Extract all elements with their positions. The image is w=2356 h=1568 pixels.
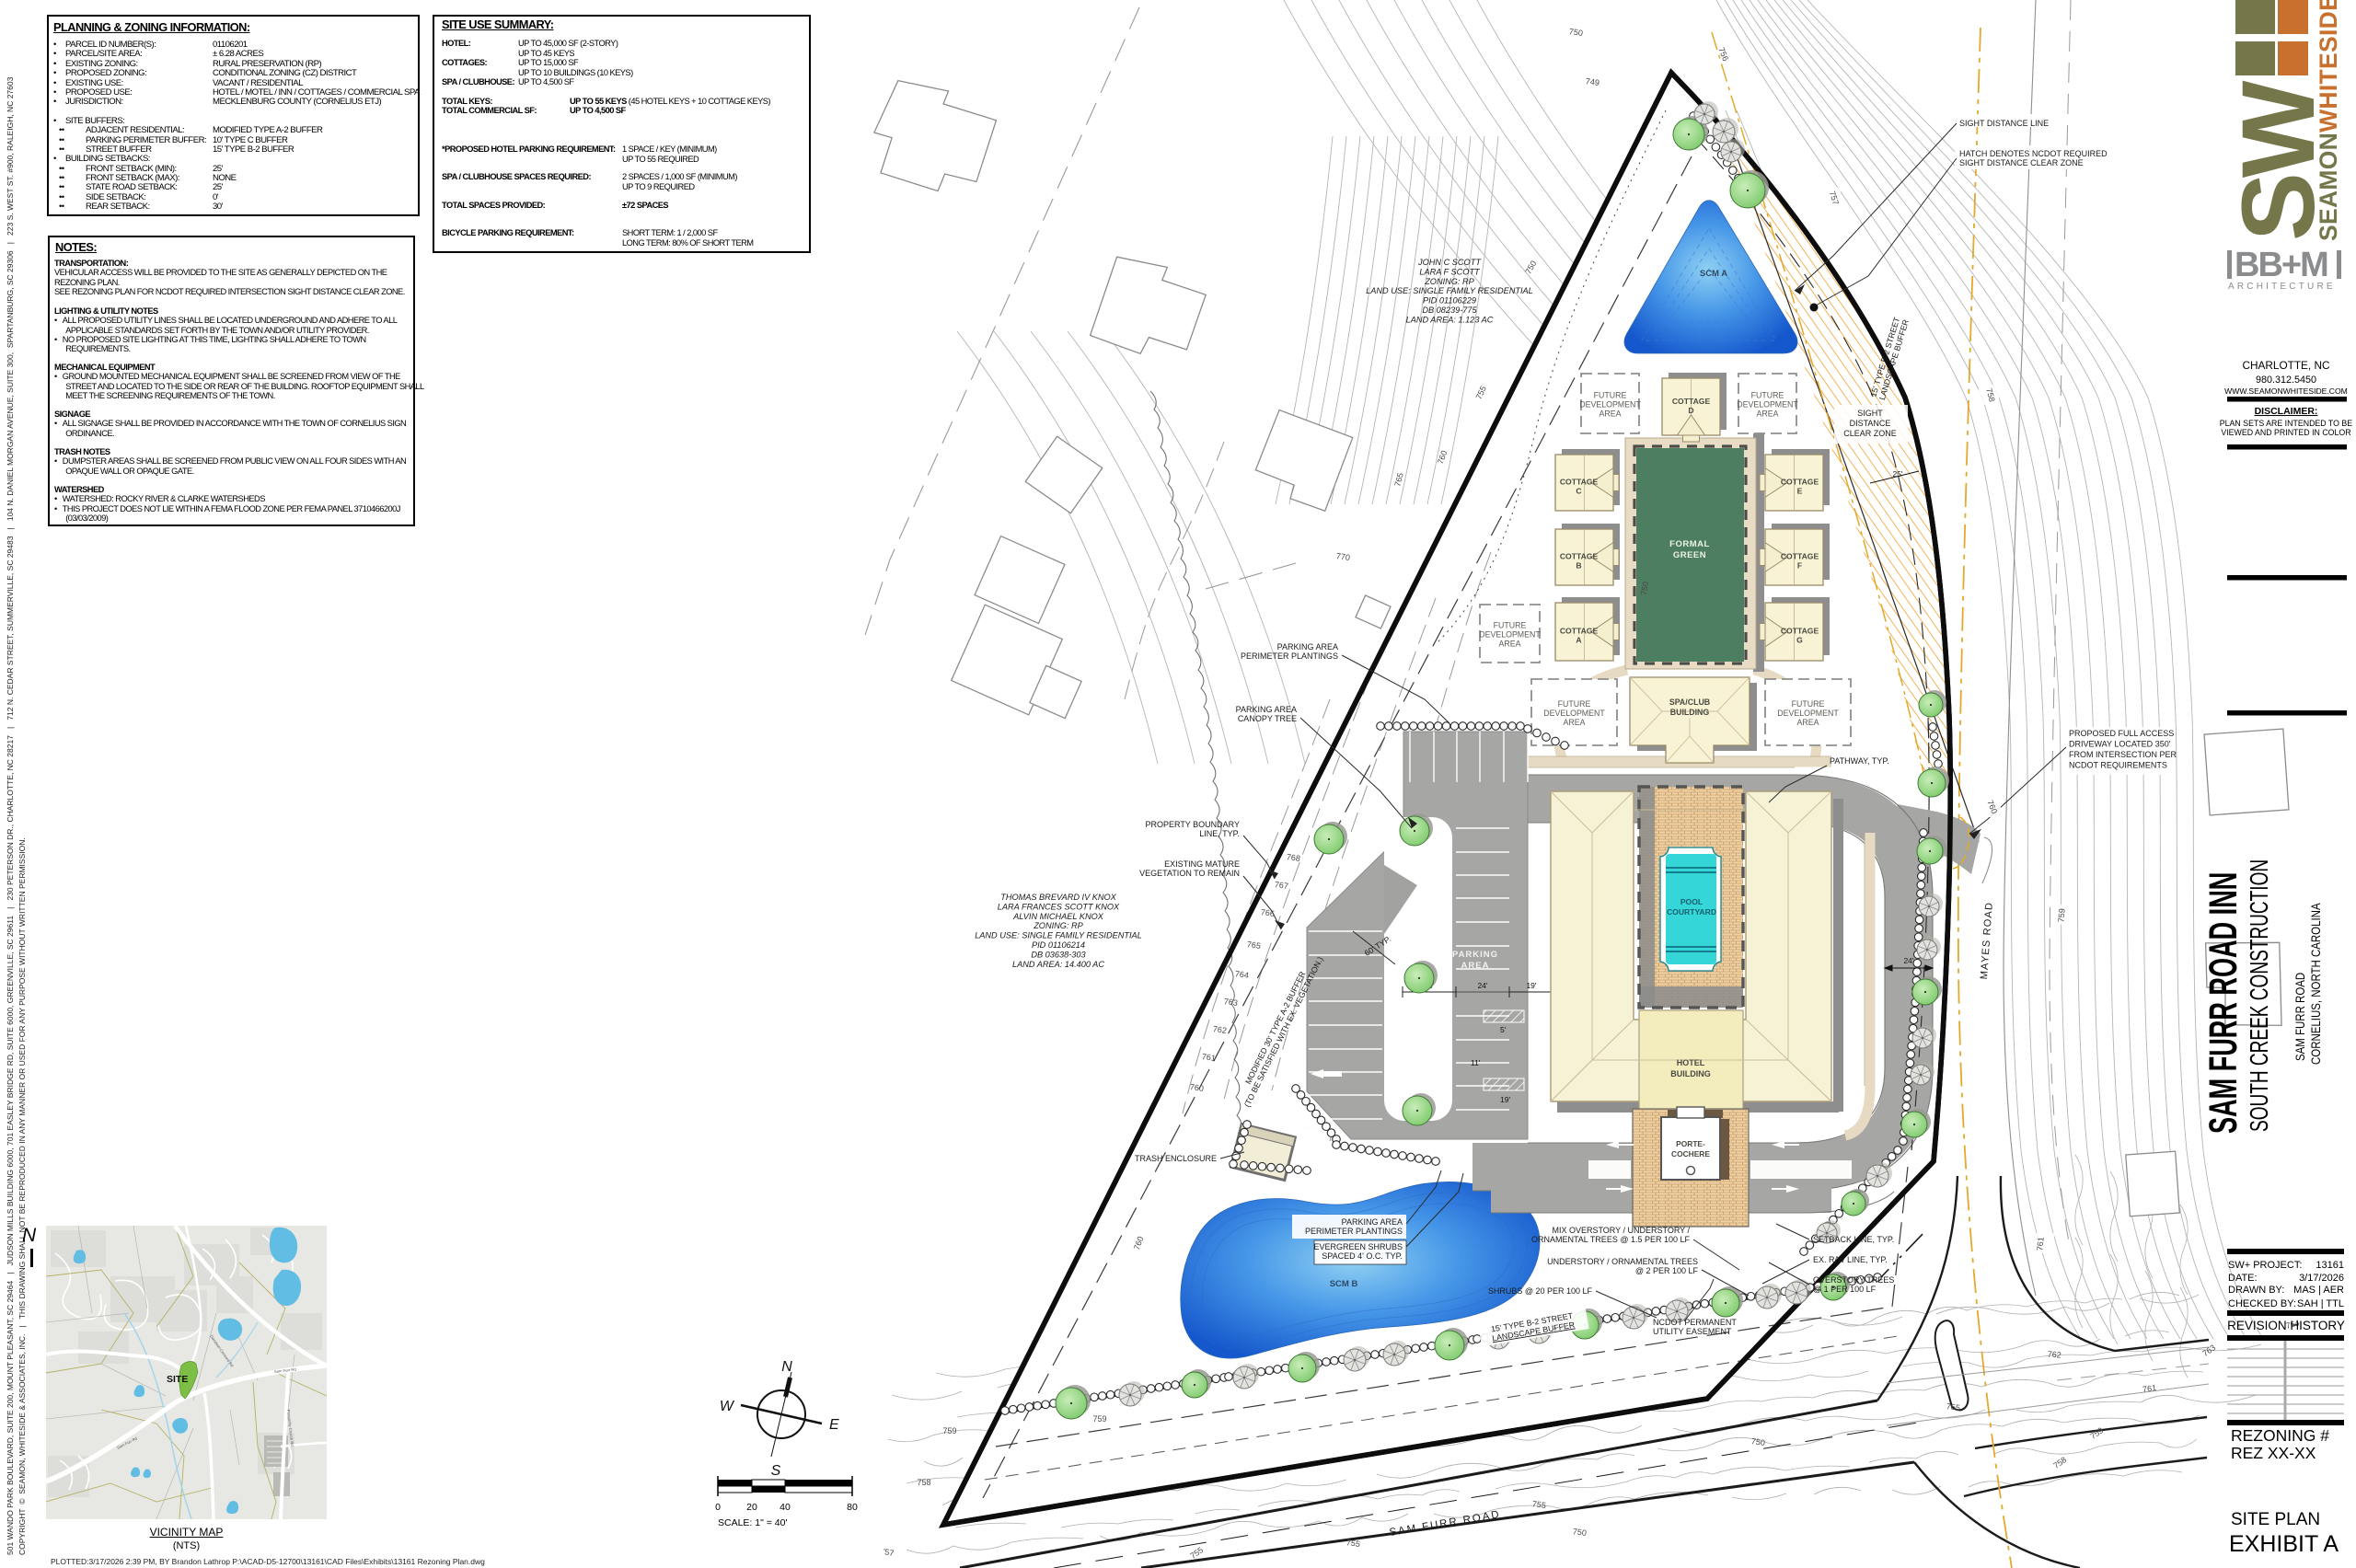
svg-text:FUTURE: FUTURE (1792, 699, 1825, 709)
svg-text:CLEAR ZONE: CLEAR ZONE (1843, 429, 1897, 438)
svg-text:768: 768 (1286, 852, 1300, 863)
svg-text:E: E (1797, 487, 1803, 496)
svg-text:VIEWED AND PRINTED IN COLOR: VIEWED AND PRINTED IN COLOR (2221, 428, 2350, 437)
svg-text:SW+ PROJECT:: SW+ PROJECT: (2228, 1260, 2302, 1271)
svg-text:SCM B: SCM B (1330, 1279, 1358, 1289)
svg-text:COURTYARD: COURTYARD (1667, 907, 1716, 917)
svg-text:COTTAGE: COTTAGE (1560, 627, 1599, 636)
svg-text:SCM A: SCM A (1700, 269, 1727, 279)
svg-text:19': 19' (1526, 981, 1536, 990)
svg-text:SAH | TTL: SAH | TTL (2297, 1298, 2344, 1309)
svg-text:PLAN SETS ARE INTENDED TO BE: PLAN SETS ARE INTENDED TO BE (2220, 419, 2353, 428)
svg-text:OVERSTORY TREES: OVERSTORY TREES (1813, 1275, 1894, 1285)
svg-text:LAND USE: SINGLE FAMILY RESIDE: LAND USE: SINGLE FAMILY RESIDENTIAL (1366, 286, 1533, 295)
svg-text:DEVELOPMENT: DEVELOPMENT (1479, 630, 1541, 640)
svg-text:PATHWAY, TYP.: PATHWAY, TYP. (1830, 756, 1889, 766)
svg-text:PID 01106229: PID 01106229 (1423, 296, 1476, 306)
svg-text:UTILITY EASEMENT: UTILITY EASEMENT (1653, 1327, 1732, 1336)
svg-text:40: 40 (780, 1502, 791, 1513)
svg-text:SIGHT DISTANCE CLEAR ZONE: SIGHT DISTANCE CLEAR ZONE (1959, 158, 2084, 167)
svg-text:HOTEL: HOTEL (1677, 1058, 1705, 1067)
svg-text:THOMAS BREVARD IV KNOX: THOMAS BREVARD IV KNOX (1000, 893, 1116, 902)
svg-text:F: F (1797, 561, 1802, 571)
svg-text:SCALE: 1" = 40': SCALE: 1" = 40' (718, 1517, 787, 1528)
svg-text:EX. R/W LINE, TYP.: EX. R/W LINE, TYP. (1813, 1255, 1888, 1264)
svg-text:'57: '57 (883, 1547, 895, 1558)
svg-text:SEAMONWHITESIDE: SEAMONWHITESIDE (2315, 0, 2342, 241)
svg-text:MIX OVERSTORY / UNDERSTORY /: MIX OVERSTORY / UNDERSTORY / (1552, 1226, 1690, 1235)
svg-text:C: C (1576, 487, 1581, 496)
svg-text:COTTAGE: COTTAGE (1560, 478, 1599, 487)
svg-text:DB 08239-775: DB 08239-775 (1422, 306, 1477, 315)
svg-text:24': 24' (1477, 981, 1487, 990)
svg-text:FORMAL: FORMAL (1669, 539, 1710, 549)
svg-text:759: 759 (1092, 1414, 1106, 1424)
svg-text:COTTAGE: COTTAGE (1781, 478, 1819, 487)
svg-text:SIGHT DISTANCE LINE: SIGHT DISTANCE LINE (1959, 119, 2049, 128)
svg-text:REZONING #: REZONING # (2231, 1426, 2329, 1445)
svg-text:750: 750 (1568, 27, 1583, 38)
svg-text:PARKING AREA: PARKING AREA (1342, 1217, 1403, 1227)
svg-text:770: 770 (1335, 551, 1350, 562)
svg-text:FUTURE: FUTURE (1751, 391, 1784, 400)
svg-text:DEVELOPMENT: DEVELOPMENT (1737, 400, 1798, 409)
svg-text:VEGETATION TO REMAIN: VEGETATION TO REMAIN (1139, 869, 1240, 878)
svg-text:MAS | AER: MAS | AER (2293, 1285, 2344, 1296)
svg-text:765: 765 (1392, 472, 1405, 488)
svg-text:EVERGREEN SHRUBS: EVERGREEN SHRUBS (1313, 1242, 1403, 1251)
svg-text:SIGHT: SIGHT (1857, 409, 1883, 418)
svg-text:760: 760 (1189, 1082, 1204, 1093)
svg-text:CORNELIUS, NORTH CAROLINA: CORNELIUS, NORTH CAROLINA (2309, 903, 2323, 1065)
svg-text:FUTURE: FUTURE (1558, 699, 1591, 709)
svg-text:DB 03638-303: DB 03638-303 (1031, 950, 1086, 959)
svg-text:ARCHITECTURE: ARCHITECTURE (2228, 282, 2336, 292)
svg-text:PARKING AREA: PARKING AREA (1277, 642, 1338, 651)
svg-text:PID 01106214: PID 01106214 (1032, 940, 1085, 950)
svg-text:@ 1 PER 100 LF: @ 1 PER 100 LF (1813, 1285, 1877, 1294)
svg-text:761: 761 (2142, 1383, 2156, 1394)
svg-text:759: 759 (942, 1426, 956, 1435)
svg-text:80: 80 (847, 1502, 858, 1513)
svg-text:ALVIN MICHAEL KNOX: ALVIN MICHAEL KNOX (1012, 912, 1104, 921)
svg-text:SITE: SITE (167, 1374, 188, 1385)
svg-text:763: 763 (1223, 997, 1238, 1008)
svg-text:CHARLOTTE, NC: CHARLOTTE, NC (2242, 359, 2330, 372)
svg-text:DRIVEWAY LOCATED 350': DRIVEWAY LOCATED 350' (2069, 740, 2171, 749)
svg-text:DEVELOPMENT: DEVELOPMENT (1579, 400, 1641, 409)
svg-text:SHRUBS @ 20 PER 100 LF: SHRUBS @ 20 PER 100 LF (1488, 1286, 1593, 1296)
svg-text:ZONING: RP: ZONING: RP (1033, 921, 1083, 930)
svg-text:DISTANCE: DISTANCE (1850, 419, 1891, 428)
svg-text:755: 755 (1474, 385, 1488, 401)
svg-text:AREA: AREA (1797, 718, 1819, 727)
svg-text:G: G (1796, 636, 1803, 645)
svg-text:980.312.5450: 980.312.5450 (2256, 375, 2316, 386)
svg-text:AREA: AREA (1461, 961, 1490, 971)
svg-text:13161: 13161 (2316, 1260, 2344, 1271)
svg-text:W: W (720, 1399, 735, 1414)
svg-text:GREEN: GREEN (1673, 550, 1706, 560)
svg-text:24': 24' (1903, 956, 1913, 965)
svg-text:759: 759 (2088, 1425, 2105, 1441)
svg-text:0: 0 (715, 1502, 721, 1513)
svg-text:ORNAMENTAL TREES @ 1.5 PER 100: ORNAMENTAL TREES @ 1.5 PER 100 LF (1531, 1235, 1691, 1244)
svg-text:756: 756 (1716, 46, 1730, 63)
svg-text:761: 761 (1201, 1052, 1216, 1063)
svg-text:REZ XX-XX: REZ XX-XX (2231, 1444, 2316, 1462)
svg-text:761: 761 (2035, 1237, 2045, 1251)
svg-text:LAND USE: SINGLE FAMILY RESIDE: LAND USE: SINGLE FAMILY RESIDENTIAL (975, 931, 1142, 940)
svg-text:PROPERTY BOUNDARY: PROPERTY BOUNDARY (1145, 820, 1240, 829)
svg-text:COTTAGE: COTTAGE (1560, 552, 1599, 561)
svg-text:COTTAGE: COTTAGE (1672, 397, 1711, 406)
svg-text:ZONING: RP: ZONING: RP (1424, 277, 1474, 286)
svg-text:LARA FRANCES SCOTT KNOX: LARA FRANCES SCOTT KNOX (998, 902, 1120, 911)
svg-text:LAND AREA: 14.400 AC: LAND AREA: 14.400 AC (1012, 960, 1104, 969)
svg-text:PARKING AREA: PARKING AREA (1236, 705, 1297, 714)
svg-text:DATE:: DATE: (2228, 1273, 2258, 1284)
svg-text:WWW.SEAMONWHITESIDE.COM: WWW.SEAMONWHITESIDE.COM (2224, 386, 2348, 396)
svg-text:COCHERE: COCHERE (1671, 1149, 1710, 1159)
svg-text:758: 758 (917, 1478, 930, 1487)
svg-text:N: N (781, 1359, 792, 1375)
svg-text:767: 767 (1274, 880, 1288, 891)
svg-text:SPACED 4' O.C. TYP.: SPACED 4' O.C. TYP. (1322, 1251, 1403, 1261)
svg-text:AREA: AREA (1757, 409, 1779, 419)
svg-text:PARKING: PARKING (1452, 950, 1498, 960)
svg-text:760: 760 (1436, 449, 1449, 466)
svg-text:PERIMETER PLANTINGS: PERIMETER PLANTINGS (1241, 651, 1338, 661)
svg-text:@ 2 PER 100 LF: @ 2 PER 100 LF (1635, 1266, 1699, 1275)
svg-text:BUILDING: BUILDING (1670, 708, 1710, 717)
svg-text:EXISTING MATURE: EXISTING MATURE (1164, 859, 1240, 869)
svg-text:19': 19' (1500, 1095, 1510, 1104)
svg-text:COTTAGE: COTTAGE (1781, 627, 1819, 636)
svg-text:759: 759 (2056, 908, 2066, 923)
svg-text:760: 760 (1132, 1235, 1146, 1251)
svg-text:DISCLAIMER:: DISCLAIMER: (2255, 406, 2318, 417)
svg-text:EXHIBIT A: EXHIBIT A (2229, 1531, 2339, 1557)
svg-text:LARA F SCOTT: LARA F SCOTT (1419, 267, 1481, 276)
svg-text:SOUTH CREEK CONSTRUCTION: SOUTH CREEK CONSTRUCTION (2245, 859, 2274, 1132)
svg-text:764: 764 (1234, 969, 1249, 980)
svg-text:CANOPY TREE: CANOPY TREE (1238, 714, 1297, 723)
svg-text:11': 11' (1471, 1058, 1481, 1067)
svg-text:750: 750 (1572, 1527, 1587, 1538)
svg-text:E: E (829, 1417, 839, 1433)
svg-text:POOL: POOL (1680, 897, 1703, 906)
svg-text:SAM FURR ROAD INN: SAM FURR ROAD INN (2209, 872, 2246, 1134)
svg-text:TRASH ENCLOSURE: TRASH ENCLOSURE (1135, 1154, 1217, 1163)
svg-text:DEVELOPMENT: DEVELOPMENT (1543, 709, 1605, 718)
svg-text:AREA: AREA (1564, 718, 1586, 727)
svg-text:NCDOT REQUIREMENTS: NCDOT REQUIREMENTS (2069, 761, 2167, 770)
svg-text:DRAWN BY:: DRAWN BY: (2228, 1285, 2284, 1296)
svg-text:LINE, TYP.: LINE, TYP. (1199, 829, 1240, 838)
svg-text:SPA/CLUB: SPA/CLUB (1669, 698, 1710, 707)
svg-text:SAM FURR ROAD: SAM FURR ROAD (1389, 1509, 1502, 1539)
svg-text:750: 750 (1523, 259, 1538, 275)
svg-text:AREA: AREA (1499, 640, 1521, 649)
svg-text:COTTAGE: COTTAGE (1781, 552, 1819, 561)
svg-text:20: 20 (746, 1502, 757, 1513)
svg-text:D: D (1688, 406, 1693, 415)
svg-text:DEVELOPMENT: DEVELOPMENT (1777, 709, 1839, 718)
svg-text:NCDOT PERMANENT: NCDOT PERMANENT (1653, 1318, 1737, 1327)
svg-text:AREA: AREA (1600, 409, 1622, 419)
svg-text:HATCH DENOTES NCDOT REQUIRED: HATCH DENOTES NCDOT REQUIRED (1959, 149, 2108, 158)
svg-text:755: 755 (1946, 1401, 1960, 1412)
svg-text:750: 750 (1750, 1436, 1765, 1447)
svg-text:BUILDING: BUILDING (1670, 1069, 1711, 1078)
svg-text:749: 749 (1585, 76, 1600, 87)
svg-text:BB+M: BB+M (2235, 246, 2327, 284)
svg-text:A: A (1576, 636, 1581, 645)
svg-text:758: 758 (2051, 1455, 2068, 1470)
svg-text:SITE PLAN: SITE PLAN (2231, 1510, 2320, 1529)
svg-text:FROM INTERSECTION PER: FROM INTERSECTION PER (2069, 750, 2177, 759)
svg-text:SETBACK LINE, TYP.: SETBACK LINE, TYP. (1813, 1235, 1894, 1244)
svg-text:FUTURE: FUTURE (1494, 621, 1527, 630)
svg-text:B: B (1576, 561, 1581, 571)
svg-text:UNDERSTORY / ORNAMENTAL TREES: UNDERSTORY / ORNAMENTAL TREES (1547, 1257, 1698, 1266)
svg-text:762: 762 (1212, 1024, 1227, 1035)
svg-text:S: S (771, 1463, 781, 1479)
svg-text:FUTURE: FUTURE (1594, 391, 1627, 400)
svg-text:755: 755 (1345, 1538, 1360, 1549)
svg-text:JOHN C SCOTT: JOHN C SCOTT (1417, 258, 1482, 267)
svg-text:5': 5' (1500, 1025, 1507, 1034)
svg-text:766: 766 (1260, 907, 1275, 918)
svg-text:PORTE-: PORTE- (1676, 1139, 1705, 1148)
svg-text:762: 762 (2047, 1349, 2061, 1359)
svg-text:755: 755 (1531, 1499, 1546, 1510)
svg-text:SAM FURR ROAD: SAM FURR ROAD (2293, 973, 2307, 1061)
svg-text:765: 765 (1246, 940, 1261, 951)
svg-text:LAND AREA: 1.123 AC: LAND AREA: 1.123 AC (1406, 315, 1494, 324)
svg-text:CHECKED BY:: CHECKED BY: (2228, 1298, 2296, 1309)
svg-text:REVISION HISTORY: REVISION HISTORY (2227, 1319, 2345, 1332)
svg-text:PROPOSED FULL ACCESS: PROPOSED FULL ACCESS (2069, 729, 2174, 738)
svg-text:25': 25' (1892, 469, 1902, 478)
svg-text:3/17/2026: 3/17/2026 (2299, 1273, 2344, 1284)
svg-text:PERIMETER PLANTINGS: PERIMETER PLANTINGS (1305, 1227, 1403, 1236)
